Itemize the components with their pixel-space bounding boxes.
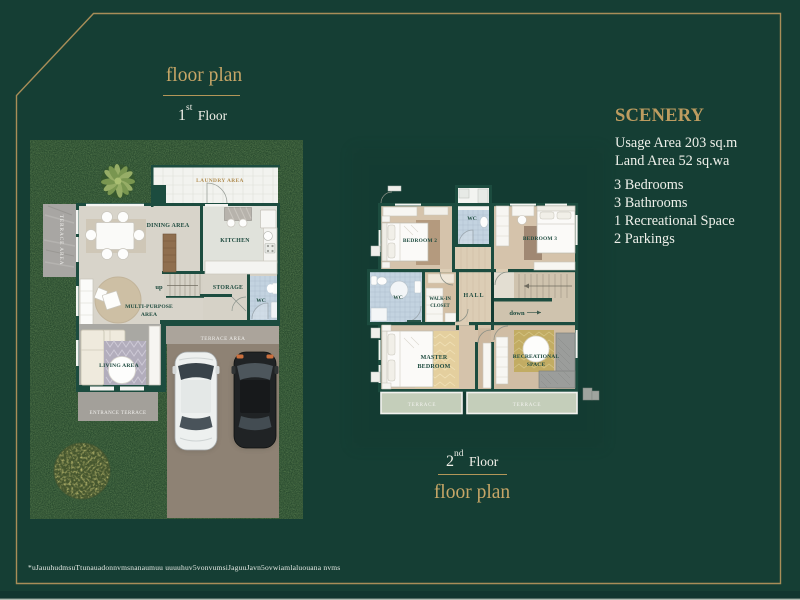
svg-text:Usage Area 203 sq.m: Usage Area 203 sq.m <box>615 135 737 151</box>
svg-text:TERRACE AREA: TERRACE AREA <box>58 215 64 266</box>
svg-text:STORAGE: STORAGE <box>213 285 243 291</box>
svg-text:CLOSET: CLOSET <box>430 304 450 309</box>
svg-text:*uJauuhudmsuTtunauadonnvmsnana: *uJauuhudmsuTtunauadonnvmsnanaumuu uuuuh… <box>28 563 340 572</box>
svg-text:LAUNDRY AREA: LAUNDRY AREA <box>196 178 244 184</box>
svg-text:SCENERY: SCENERY <box>615 106 705 126</box>
svg-text:BEDROOM 2: BEDROOM 2 <box>403 238 437 244</box>
svg-text:Land Area 52 sq.wa: Land Area 52 sq.wa <box>615 153 730 169</box>
svg-text:up: up <box>155 284 163 291</box>
svg-text:AREA: AREA <box>141 312 157 318</box>
svg-text:floor plan: floor plan <box>434 482 511 503</box>
svg-text:ENTRANCE TERRACE: ENTRANCE TERRACE <box>89 411 146 416</box>
svg-text:SPACE: SPACE <box>527 362 546 368</box>
svg-text:MASTER: MASTER <box>421 355 448 361</box>
svg-text:BEDROOM 3: BEDROOM 3 <box>523 236 557 242</box>
svg-text:floor plan: floor plan <box>166 65 243 86</box>
svg-text:2 Parkings: 2 Parkings <box>614 231 675 247</box>
svg-text:KITCHEN: KITCHEN <box>220 238 250 244</box>
svg-text:1 Recreational Space: 1 Recreational Space <box>614 213 735 229</box>
svg-text:3 Bathrooms: 3 Bathrooms <box>614 195 688 211</box>
svg-text:TERRACE: TERRACE <box>408 403 436 408</box>
svg-text:RECREATIONAL: RECREATIONAL <box>513 354 560 360</box>
svg-text:down: down <box>509 310 525 317</box>
svg-text:WC: WC <box>393 295 403 301</box>
svg-text:WALK-IN: WALK-IN <box>429 297 451 302</box>
svg-text:TERRACE: TERRACE <box>513 403 541 408</box>
svg-text:3 Bedrooms: 3 Bedrooms <box>614 177 684 193</box>
svg-text:TERRACE AREA: TERRACE AREA <box>201 336 246 342</box>
svg-text:LIVING AREA: LIVING AREA <box>99 363 139 369</box>
svg-text:HALL: HALL <box>463 293 484 299</box>
svg-text:WC: WC <box>467 216 477 222</box>
svg-text:MULTI-PURPOSE: MULTI-PURPOSE <box>125 304 173 310</box>
svg-text:BEDROOM: BEDROOM <box>417 364 450 370</box>
svg-text:DINING AREA: DINING AREA <box>147 223 190 229</box>
